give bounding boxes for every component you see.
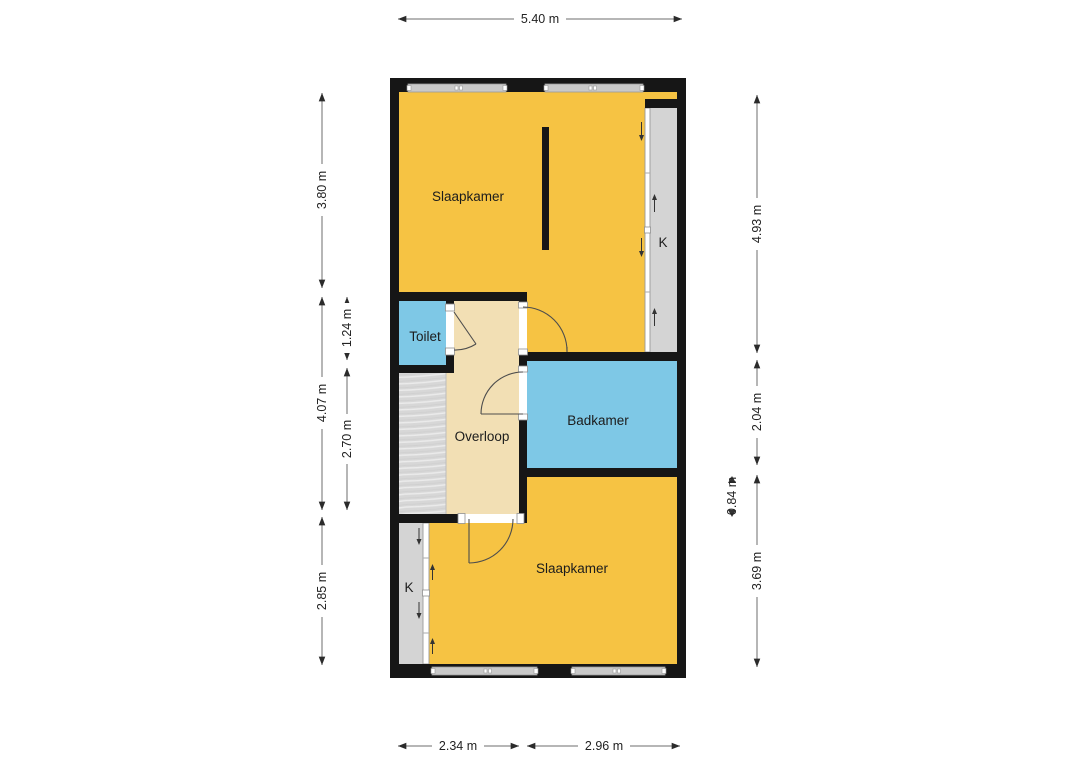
- dim-label: 2.85 m: [315, 572, 329, 610]
- wall-closet-top-stub: [645, 99, 686, 108]
- window-bottom-right: [571, 667, 666, 675]
- room-overloop: [446, 301, 519, 514]
- dim-left-124: 1.24 m: [339, 297, 355, 360]
- label-closet-top-right: K: [658, 235, 667, 250]
- dim-label: 4.07 m: [315, 384, 329, 422]
- label-closet-bottom-left: K: [404, 580, 413, 595]
- window-bottom-left: [431, 667, 538, 675]
- wall-outer-left: [390, 78, 399, 678]
- dim-right-204: 2.04 m: [749, 360, 765, 465]
- label-slaapkamer-top: Slaapkamer: [432, 189, 505, 204]
- dim-label: 3.69 m: [750, 552, 764, 590]
- floor-plan-canvas: Slaapkamer Toilet Overloop Badkamer Slaa…: [0, 0, 1080, 764]
- label-badkamer: Badkamer: [567, 413, 629, 428]
- wall-freestanding-divider: [542, 127, 549, 250]
- dim-right-084: 0.84 m: [725, 476, 739, 517]
- wall-badkamer-top: [519, 352, 677, 361]
- dim-top: 5.40 m: [398, 11, 682, 27]
- dim-label: 1.24 m: [340, 309, 354, 347]
- dim-label: 2.34 m: [439, 739, 477, 753]
- label-overloop: Overloop: [455, 429, 510, 444]
- rooms: [399, 92, 677, 664]
- dim-right-369: 3.69 m: [749, 475, 765, 667]
- window-top-right: [544, 84, 644, 92]
- wall-toilet-bottom: [390, 365, 454, 373]
- track-divider: [423, 590, 430, 596]
- window-top-left: [407, 84, 507, 92]
- dim-left-380: 3.80 m: [314, 93, 330, 288]
- dim-left-407: 4.07 m: [314, 297, 330, 510]
- track-divider: [645, 227, 651, 233]
- dim-label: 5.40 m: [521, 12, 559, 26]
- wall-slaapkamer-top-bottom: [390, 292, 527, 301]
- dim-label: 2.96 m: [585, 739, 623, 753]
- dim-bottom-left: 2.34 m: [398, 738, 519, 754]
- label-toilet: Toilet: [409, 329, 441, 344]
- dim-label: 0.84 m: [725, 477, 739, 515]
- dim-left-270: 2.70 m: [339, 368, 355, 510]
- dim-label: 2.04 m: [750, 393, 764, 431]
- staircase: [399, 373, 446, 514]
- floor-plan-page: Slaapkamer Toilet Overloop Badkamer Slaa…: [0, 0, 1080, 764]
- wall-outer-right: [677, 78, 686, 678]
- wall-badkamer-bottom: [519, 468, 677, 477]
- label-slaapkamer-bottom: Slaapkamer: [536, 561, 609, 576]
- dim-label: 4.93 m: [750, 205, 764, 243]
- dim-label: 2.70 m: [340, 420, 354, 458]
- dim-bottom-right: 2.96 m: [527, 738, 680, 754]
- dim-left-285: 2.85 m: [314, 517, 330, 665]
- dim-right-493: 4.93 m: [749, 95, 765, 353]
- dim-label: 3.80 m: [315, 171, 329, 209]
